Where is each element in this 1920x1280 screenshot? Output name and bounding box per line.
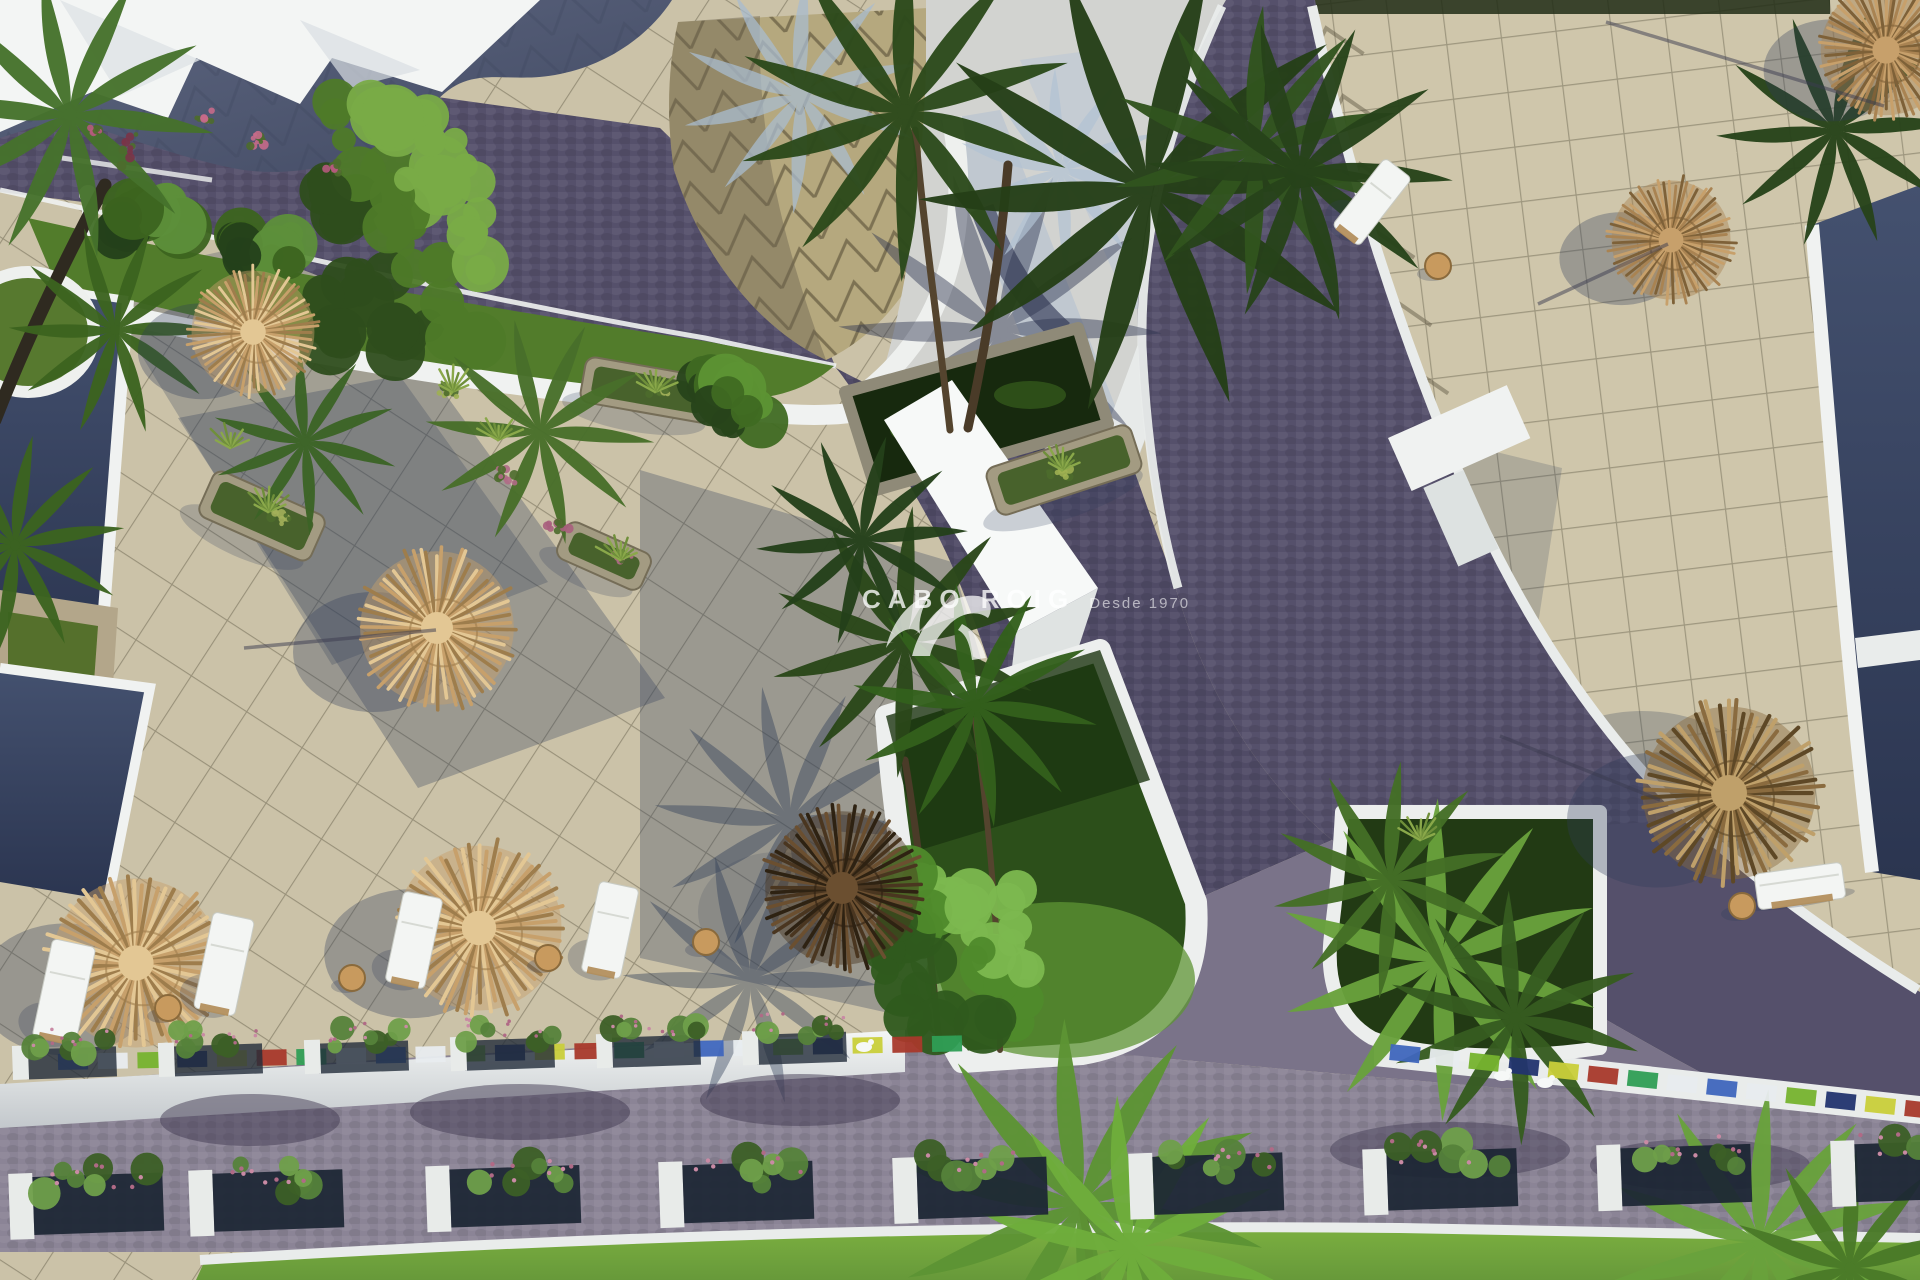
aerial-resort-render: CABO ROIG Desde 1970 — [0, 0, 1920, 1280]
accent-tile — [1865, 1096, 1897, 1115]
render-scene — [0, 0, 1920, 1280]
accent-tile — [932, 1035, 962, 1052]
accent-tile — [1389, 1044, 1421, 1063]
accent-tile — [1429, 1048, 1461, 1067]
hedge-top — [1270, 0, 1830, 14]
accent-tile — [1468, 1053, 1500, 1072]
accent-tile — [892, 1036, 922, 1053]
accent-tile — [1825, 1091, 1857, 1110]
accent-tile — [1587, 1066, 1619, 1085]
accent-tile — [1666, 1074, 1698, 1093]
accent-tile — [415, 1046, 445, 1063]
accent-tile — [1627, 1070, 1659, 1089]
accent-tile — [1746, 1083, 1778, 1102]
accent-tile — [1508, 1057, 1540, 1076]
accent-tile — [1706, 1079, 1738, 1098]
accent-tile — [1785, 1087, 1817, 1106]
